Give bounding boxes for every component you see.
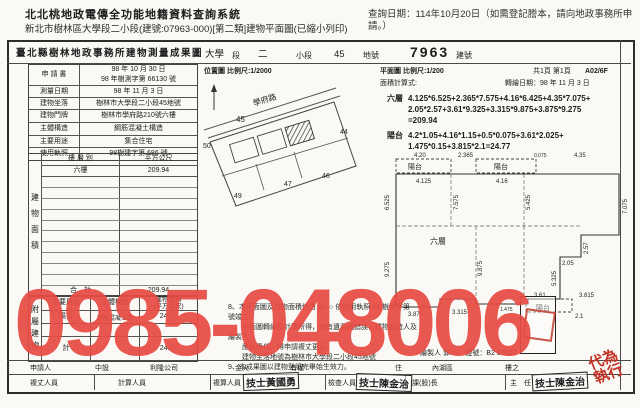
parcel-49: 49 [234,193,242,200]
survey-date: 98 年 11 月 3 日 [80,86,197,97]
empty-area-row [42,242,197,253]
dim-label: 0.075 [534,153,547,159]
survey-doc-title: 臺北縣樹林地政事務所建物測量成果圖 [16,48,203,60]
land-no-label: 地號 [363,50,379,61]
info-label: 主要用途 [29,136,80,147]
floor-name: 六樓 [42,166,120,176]
checker-label: 複算人員 [213,379,241,389]
dim-label: 7.075 [623,198,629,214]
subsection-label: 小段 [296,50,312,61]
building-address: 樹林市學府路210號六樓 [80,110,197,122]
dim-label: 2.1 [575,314,584,320]
parcel-44: 44 [340,129,348,136]
section-chief-label: 課(股)長 [412,379,438,389]
floor-col-header: 樓 層 別 [42,154,120,165]
area-calc-label: 面積計算式: [380,79,417,89]
dim-label: 4.35 [574,153,586,159]
info-label: 主體構造 [29,123,80,135]
cell-divider [94,374,95,390]
info-label: 申 請 書 [29,65,80,85]
empty-area-row [42,177,197,188]
dim-label: 4.20 [414,153,426,159]
director-stamp: 技士陳金治 [532,372,589,392]
empty-area-row [42,188,197,199]
watermark-phone: 0985-048006 [14,276,530,371]
balcony-label: 陽台 [494,162,508,171]
dim-label: 5.325 [552,270,558,286]
section-label: 段 [232,50,240,61]
empty-area-row [42,253,197,264]
dim-label: 2.57 [584,242,590,254]
dim-label: 6.525 [385,194,391,210]
calc-floor-line1: 4.125*6.525+2.365*7.575+4.16*6.425+4.35*… [408,93,590,104]
redraw-date: 轉繪日期：98 年 11 月 3 日 [505,79,590,89]
dim-label: 4.125 [416,179,432,185]
apply-date: 98 年 10 月 30 日 [111,65,165,75]
info-label: 測量日期 [29,86,80,97]
location-map: 學府路 45 44 46 47 49 50 [202,80,372,298]
inspector-label: 檢查人員 [328,379,356,389]
main-structure: 鋼筋混凝土構造 [80,123,197,135]
calculator-label: 計算人員 [118,379,146,389]
empty-area-row [42,231,197,242]
dim-label: 7.575 [454,194,460,210]
floor-area: 209.94 [120,166,197,176]
calc-balcony-line1: 4.2*1.05+4.16*1.15+0.5*0.075+3.61*2.025+ [408,130,564,141]
parcel-50: 50 [203,143,211,150]
director-label: 主 任 [510,379,531,389]
query-date: 查詢日期：114年10月20日（如需登記謄本，請向地政事務所申請。） [368,9,640,33]
subject-building-hatched [285,120,314,145]
info-label: 建物坐落 [29,98,80,109]
empty-area-row [42,210,197,221]
building-no: 7963 [410,44,449,60]
scanned-cadastral-document-page: 北北桃地政電傳全功能地籍資料查詢系統 查詢日期：114年10月20日（如需登記謄… [0,0,640,408]
main-use: 集合住宅 [80,136,197,147]
calc-floor-line2: 2.05*2.57+3.61*9.325+3.315*9.875+3.875*9… [408,104,581,115]
dim-label: 2.05 [562,261,574,267]
system-title: 北北桃地政電傳全功能地籍資料查詢系統 [25,6,241,22]
calc-floor-total: =209.94 [408,115,437,126]
calc-balcony-name: 陽台 [387,130,403,141]
cell-divider [505,374,506,390]
page-count: 共1頁 第1頁 [533,67,571,77]
sqm-col-header: 平方公尺 [120,154,197,165]
apply-doc-no: 98 年樹測字第 66130 號 [101,75,176,85]
empty-area-row [42,221,197,232]
balcony-label: 陽台 [408,162,422,171]
dim-label: 2.365 [458,153,474,159]
north-arrow-icon [211,84,217,110]
doc-subtitle: 新北市樹林區大學段二小段(建號:07963-000)[第二類]建物平面圖(已縮小… [25,24,348,36]
parcel-47: 47 [284,181,292,188]
subsection-name: 二 [258,49,268,61]
land-no: 45 [334,49,345,61]
building-site: 樹林市大學段二小段45地號 [80,98,197,109]
room-label: 六層 [430,236,446,246]
parcel-45: 45 [236,115,245,124]
plan-title: 平面圖 比例尺:1/200 [380,67,444,77]
form-code: A02/6F [585,67,608,77]
dim-label: 5.425 [526,194,532,210]
location-map-title: 位置圖 比例尺:1/2000 [204,67,272,77]
surveyor-label: 複丈人員 [30,379,58,389]
empty-area-row [42,199,197,210]
dim-label: 3.815 [579,293,595,299]
building-no-label: 建號 [456,50,472,61]
building-info-table: 申 請 書 98 年 10 月 30 日 98 年樹測字第 66130 號 測量… [28,64,198,161]
road-label: 學府路 [252,91,278,108]
parcel-46: 46 [322,173,330,180]
cell-divider [210,374,211,390]
calc-floor-name: 六層 [387,93,403,104]
section-name: 大學 [205,49,224,61]
info-label: 建物門牌 [29,110,80,122]
calc-balcony-line2: 1.475*0.15+3.815*2.1=24.77 [408,141,510,152]
dim-label: 4.16 [496,179,508,185]
cell-divider [325,374,326,390]
